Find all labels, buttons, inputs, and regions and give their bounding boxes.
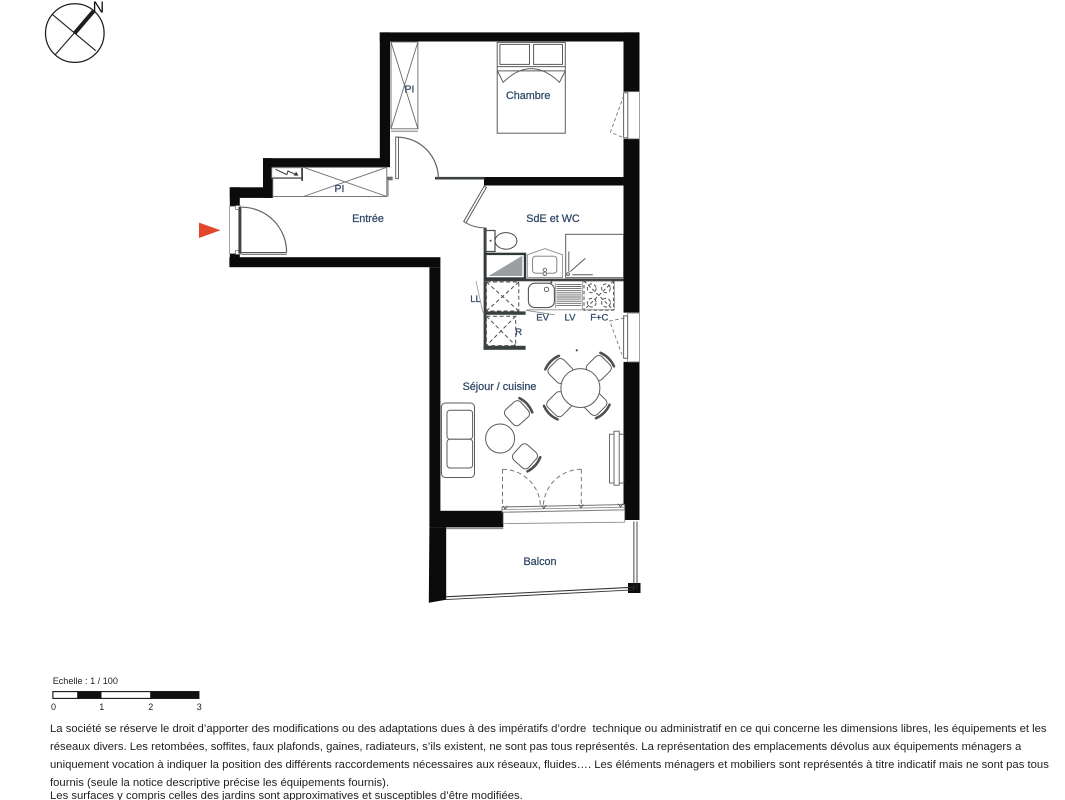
svg-text:SdE et WC: SdE et WC <box>526 213 580 225</box>
svg-text:LV: LV <box>565 313 577 324</box>
svg-text:3: 3 <box>197 702 202 712</box>
svg-text:Chambre: Chambre <box>506 90 550 102</box>
svg-text:R: R <box>515 327 522 338</box>
svg-text:EV: EV <box>536 313 549 324</box>
svg-text:N: N <box>93 0 105 17</box>
svg-text:PI: PI <box>335 183 345 195</box>
svg-text:Echelle : 1 / 100: Echelle : 1 / 100 <box>53 676 118 686</box>
svg-text:0: 0 <box>51 702 56 712</box>
svg-text:PI: PI <box>404 84 414 96</box>
svg-text:fournis (seule la notice descr: fournis (seule la notice descriptive pré… <box>50 777 389 789</box>
svg-text:Séjour / cuisine: Séjour / cuisine <box>463 381 537 393</box>
svg-text:La société se réserve le droit: La société se réserve le droit d’apporte… <box>50 723 1047 735</box>
svg-text:uniquement vocation à indiquer: uniquement vocation à indiquer la positi… <box>50 759 1049 771</box>
svg-text:2: 2 <box>148 702 153 712</box>
svg-text:Les surfaces y compris celles: Les surfaces y compris celles des jardin… <box>50 790 523 800</box>
svg-text:1: 1 <box>99 702 104 712</box>
svg-text:F+C: F+C <box>590 313 608 324</box>
svg-text:Entrée: Entrée <box>352 213 384 225</box>
svg-text:réseaux divers. Les retombées,: réseaux divers. Les retombées, soffites,… <box>50 741 1022 753</box>
svg-text:Balcon: Balcon <box>523 556 556 568</box>
